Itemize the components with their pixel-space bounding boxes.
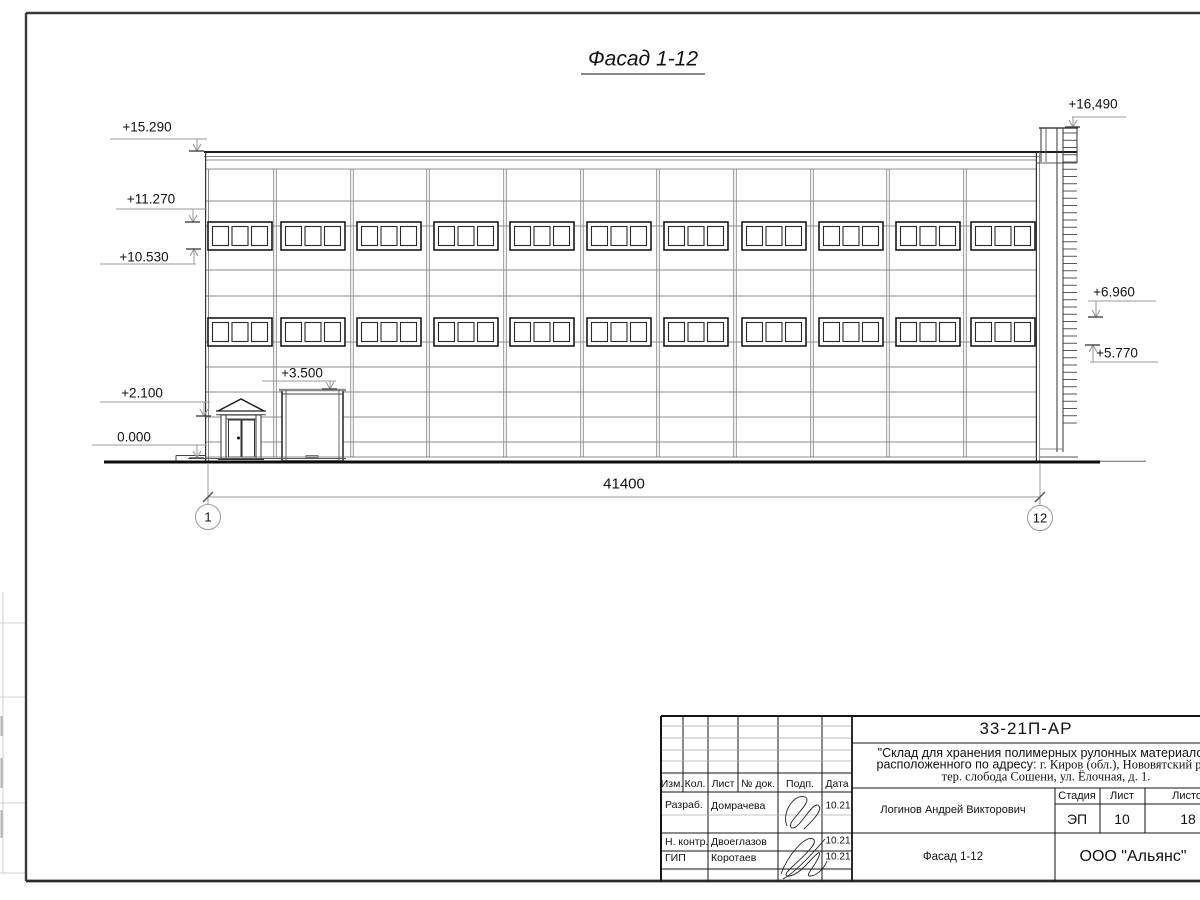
- elevation-mark-2100: +2.100: [121, 386, 163, 401]
- role-nkontr: Н. контр.: [665, 836, 708, 848]
- column-header-list: Лист: [712, 778, 735, 790]
- sheets-total: 18: [1180, 811, 1196, 827]
- date-nkontr: 10.21: [825, 836, 850, 847]
- grid-axis-1: 1: [204, 510, 211, 525]
- project-name-line3: тер. слобода Сошени, ул. Ёлочная, д. 1.: [942, 770, 1151, 785]
- drawing-sheet: Фасад 1-12 +15.290 +11.270 +10.530 +2.10…: [0, 0, 1200, 900]
- elevation-mark-15290: +15.290: [122, 120, 171, 135]
- elevation-mark-11270: +11.270: [127, 192, 175, 207]
- view-title: Фасад 1-12: [581, 48, 705, 75]
- column-header-izm: Изм.: [661, 778, 684, 790]
- role-razrab: Разраб.: [665, 799, 703, 811]
- role-gip: ГИП: [665, 852, 686, 864]
- date-razrab: 10.21: [825, 801, 850, 812]
- column-header-date: Дата: [825, 778, 848, 790]
- elevation-mark-10530: +10.530: [119, 250, 168, 265]
- overall-dimension: 41400: [603, 476, 645, 493]
- grid-axis-12: 12: [1033, 511, 1047, 526]
- stage-header: Стадия: [1058, 790, 1096, 802]
- company-name: ООО "Альянс": [1080, 848, 1187, 866]
- name-razrab: Домрачева: [711, 800, 765, 812]
- stage-value: ЭП: [1067, 811, 1087, 827]
- sheet-header: Лист: [1110, 790, 1134, 802]
- column-header-kol: Кол.: [685, 778, 706, 790]
- elevation-mark-3500: +3.500: [281, 366, 323, 381]
- elevation-mark-5770: +5.770: [1096, 346, 1138, 361]
- column-header-sign: Подп.: [786, 778, 814, 790]
- sheets-header: Листов: [1172, 790, 1200, 802]
- document-code: 33-21П-АР: [979, 719, 1072, 739]
- date-gip: 10.21: [825, 852, 850, 863]
- approver-name: Логинов Андрей Викторович: [880, 804, 1025, 816]
- elevation-mark-6960: +6.960: [1093, 285, 1135, 300]
- elevation-mark-0000: 0.000: [117, 430, 151, 445]
- drawing-name: Фасад 1-12: [923, 851, 983, 863]
- sheet-number: 10: [1114, 811, 1130, 827]
- name-gip: Коротаев: [711, 852, 756, 864]
- name-nkontr: Двоеглазов: [711, 836, 767, 848]
- column-header-doc: № док.: [741, 778, 775, 790]
- elevation-mark-16490: +16,490: [1068, 97, 1117, 112]
